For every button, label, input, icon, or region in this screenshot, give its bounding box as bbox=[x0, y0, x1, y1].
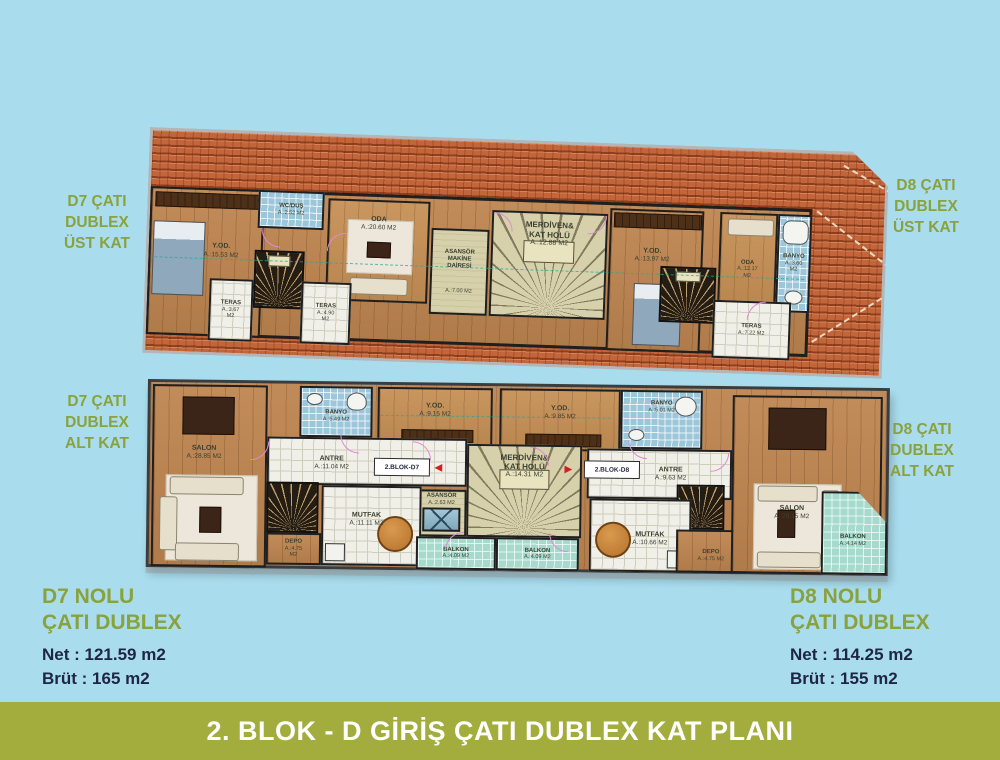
room-label: Y.OD. A.:13.97 M2 bbox=[634, 247, 670, 264]
room-label: BANYO A.:5.49 M2 bbox=[323, 410, 350, 424]
summary-d7: D7 NOLU ÇATI DUBLEX Net : 121.59 m2 Brüt… bbox=[42, 584, 272, 689]
room-label: MUTFAK A.:10.66 M2 bbox=[632, 531, 667, 547]
room-name: BANYO bbox=[323, 410, 350, 417]
room-bedroom-d8-lower: Y.OD. A.:9.85 M2 bbox=[499, 388, 621, 451]
entry-arrow-d7-icon: ◄ bbox=[432, 460, 445, 473]
room-area: A.:5.49 M2 bbox=[323, 416, 350, 423]
bathtub bbox=[782, 220, 809, 245]
room-area: A.:4.09 M2 bbox=[443, 553, 470, 560]
sofa bbox=[757, 551, 821, 568]
room-label: BANYO A.:3.60 M2 bbox=[782, 253, 804, 274]
summary-d8-title: D8 NOLU ÇATI DUBLEX bbox=[790, 584, 1000, 637]
room-banyo-d7: BANYO A.:5.49 M2 bbox=[299, 386, 373, 438]
room-name: MERDİVEN& KAT HOLÜ bbox=[525, 220, 574, 240]
room-area: A.:4.14 M2 bbox=[839, 541, 866, 548]
room-area: A.:13.97 M2 bbox=[634, 255, 669, 264]
room-name: Y.OD. bbox=[204, 242, 239, 251]
dining-table bbox=[768, 408, 827, 451]
stair-landing bbox=[675, 272, 700, 283]
shower bbox=[347, 392, 367, 410]
sofa bbox=[349, 277, 408, 296]
room-name: BALKON bbox=[524, 547, 551, 554]
room-label: WC/DUŞ A.:2.52 M2 bbox=[278, 203, 305, 217]
room-label: SALON A.:28.85 M2 bbox=[186, 444, 221, 460]
label-d8-lower: D8 ÇATI DUBLEX ALT KAT bbox=[868, 420, 976, 483]
room-name: BANYO bbox=[648, 401, 675, 408]
room-stair-hall-lower: MERDİVEN& KAT HOLÜ A.:14.31 M2 bbox=[466, 444, 582, 538]
room-label: TERAS A.:4.90 M2 bbox=[314, 303, 338, 324]
summary-d7-brut: Brüt : 165 m2 bbox=[42, 669, 272, 689]
sofa bbox=[175, 542, 239, 561]
room-name: TERAS bbox=[314, 303, 337, 311]
room-teras-2: TERAS A.:4.90 M2 bbox=[300, 281, 352, 345]
summary-d7-net: Net : 121.59 m2 bbox=[42, 645, 272, 665]
label-d8-upper: D8 ÇATI DUBLEX ÜST KAT bbox=[872, 176, 980, 239]
room-name: BANYO bbox=[783, 253, 805, 261]
stairs-d7-upper bbox=[253, 250, 305, 310]
upper-floor-plan: Y.OD. A.:15.53 M2 WC/DUŞ A.:2.52 M2 ODA … bbox=[142, 127, 889, 379]
room-oda-d8-upper: ODA A.:12.17 M2 bbox=[717, 212, 778, 312]
tv-unit bbox=[777, 510, 795, 538]
room-name: MUTFAK bbox=[632, 531, 667, 539]
room-label: Y.OD. A.:9.85 M2 bbox=[544, 405, 576, 421]
room-name: TERAS bbox=[221, 300, 242, 308]
room-teras-1: TERAS A.:3.67 M2 bbox=[208, 278, 254, 341]
room-area: A.:28.85 M2 bbox=[186, 452, 221, 460]
entry-tag-d7: 2.BLOK-D7 bbox=[374, 458, 430, 477]
room-mutfak-d7: MUTFAK A.:11.11 M2 bbox=[321, 485, 422, 566]
stair-landing bbox=[523, 240, 575, 264]
summary-d7-title: D7 NOLU ÇATI DUBLEX bbox=[42, 584, 272, 637]
tv-unit bbox=[199, 507, 221, 533]
room-name: TERAS bbox=[738, 323, 765, 331]
room-name: WC/DUŞ bbox=[278, 203, 305, 211]
sofa bbox=[758, 485, 818, 502]
washbasin bbox=[307, 393, 323, 405]
room-name: Y.OD. bbox=[419, 402, 451, 410]
stair-landing bbox=[499, 469, 550, 489]
room-area: A.:5.01 M2 bbox=[648, 408, 675, 415]
wardrobe bbox=[614, 212, 702, 230]
room-area: A.:7.22 M2 bbox=[738, 330, 765, 338]
shower bbox=[675, 396, 697, 416]
room-area: A.:2.52 M2 bbox=[278, 210, 305, 218]
room-area: A.:9.63 M2 bbox=[655, 474, 687, 482]
label-d7-upper: D7 ÇATI DUBLEX ÜST KAT bbox=[42, 192, 152, 255]
entry-tag-d7-label: 2.BLOK-D7 bbox=[385, 463, 419, 470]
room-label: TERAS A.:3.67 M2 bbox=[220, 300, 241, 321]
room-elevator: ASANSÖR A.:2.63 M2 bbox=[416, 489, 467, 537]
entry-tag-d8: 2.BLOK-D8 bbox=[584, 460, 640, 479]
room-area: A.:3.67 M2 bbox=[220, 306, 241, 320]
room-name: ANTRE bbox=[655, 466, 687, 474]
room-name: BALKON bbox=[840, 534, 867, 541]
room-label: BALKON A.:4.14 M2 bbox=[839, 534, 866, 548]
floor-plan-poster: Y.OD. A.:15.53 M2 WC/DUŞ A.:2.52 M2 ODA … bbox=[0, 0, 1000, 760]
table bbox=[367, 242, 392, 259]
room-label: Y.OD. A.:15.53 M2 bbox=[203, 242, 239, 259]
stove bbox=[325, 543, 345, 561]
room-name: DEPO bbox=[698, 549, 725, 556]
room-name: DEPO bbox=[281, 539, 307, 546]
kitchen-table bbox=[377, 516, 413, 552]
roof-hip-line bbox=[811, 292, 890, 342]
room-name: ASANSÖR bbox=[427, 492, 457, 499]
room-elevator-machine: ASANSÖR MAKİNE DAİRESİ A.:7.00 M2 bbox=[429, 228, 490, 316]
summary-d8-brut: Brüt : 155 m2 bbox=[790, 669, 1000, 689]
room-area: A.:7.00 M2 bbox=[443, 287, 473, 295]
room-area: A.:4.75 M2 bbox=[281, 545, 307, 558]
room-name: Y.OD. bbox=[635, 247, 670, 256]
room-label: TERAS A.:7.22 M2 bbox=[738, 323, 765, 337]
room-label: DEPO A.:4.75 M2 bbox=[281, 539, 307, 559]
room-area: A.:4.90 M2 bbox=[314, 310, 337, 324]
room-name: Y.OD. bbox=[544, 405, 576, 413]
sofa bbox=[159, 496, 178, 550]
sofa bbox=[170, 476, 244, 495]
room-label: ASANSÖR A.:2.63 M2 bbox=[426, 492, 456, 506]
room-label: BANYO A.:5.01 M2 bbox=[648, 401, 675, 415]
kitchen-table bbox=[595, 521, 631, 557]
entry-arrow-d8-icon: ► bbox=[562, 462, 575, 475]
room-name: SALON bbox=[187, 444, 222, 452]
room-area: A.:10.66 M2 bbox=[632, 539, 667, 547]
room-banyo-d8-upper: BANYO A.:3.60 M2 bbox=[775, 214, 812, 313]
room-label: ASANSÖR MAKİNE DAİRESİ A.:7.00 M2 bbox=[443, 231, 476, 313]
room-area: A.:3.60 M2 bbox=[782, 260, 804, 274]
wardrobe bbox=[155, 191, 261, 210]
room-name: MUTFAK bbox=[349, 511, 383, 519]
room-depo-d7: DEPO A.:4.75 M2 bbox=[266, 532, 321, 565]
room-name: ODA bbox=[734, 259, 761, 267]
room-area: A.:2.63 M2 bbox=[426, 499, 456, 506]
sofa bbox=[728, 218, 775, 237]
label-d7-lower: D7 ÇATI DUBLEX ALT KAT bbox=[42, 392, 152, 455]
room-name: ANTRE bbox=[314, 455, 349, 463]
dining-table bbox=[182, 396, 234, 435]
room-area: A.:11.04 M2 bbox=[314, 463, 349, 471]
entry-tag-d8-label: 2.BLOK-D8 bbox=[595, 466, 629, 473]
stairs-d7-lower bbox=[266, 481, 319, 533]
lower-floor-plan: SALON A.:28.85 M2 BANYO A.:5.49 M2 Y.OD.… bbox=[146, 379, 890, 576]
room-wc-shower-upper: WC/DUŞ A.:2.52 M2 bbox=[258, 190, 325, 230]
room-label: BALKON A.:4.09 M2 bbox=[524, 547, 551, 561]
title-banner: 2. BLOK - D GİRİŞ ÇATI DUBLEX KAT PLANI bbox=[0, 702, 1000, 760]
room-area: A.:4.75 M2 bbox=[697, 556, 724, 563]
banner-title: 2. BLOK - D GİRİŞ ÇATI DUBLEX KAT PLANI bbox=[206, 716, 793, 747]
summary-d8: D8 NOLU ÇATI DUBLEX Net : 114.25 m2 Brüt… bbox=[790, 584, 1000, 689]
room-label: ANTRE A.:11.04 M2 bbox=[314, 455, 349, 471]
room-salon-d7: SALON A.:28.85 M2 bbox=[151, 384, 268, 567]
room-label: DEPO A.:4.75 M2 bbox=[697, 549, 724, 563]
room-label: ANTRE A.:9.63 M2 bbox=[655, 466, 687, 482]
summary-d8-net: Net : 114.25 m2 bbox=[790, 645, 1000, 665]
elevator-shaft bbox=[422, 507, 460, 531]
room-area: A.:4.09 M2 bbox=[524, 554, 551, 561]
